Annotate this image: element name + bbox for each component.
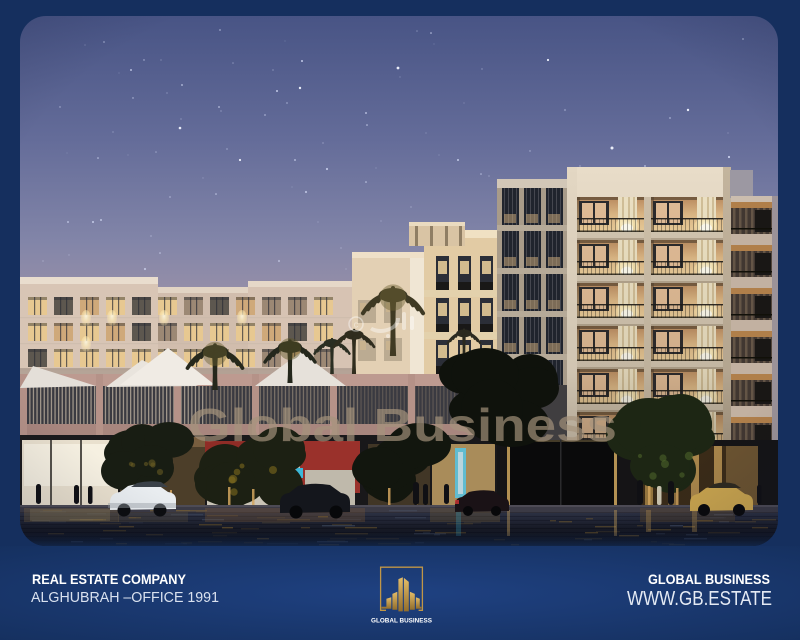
svg-text:WWW.GB.ESTATE: WWW.GB.ESTATE xyxy=(627,588,772,610)
svg-text:GLOBAL BUSINESS: GLOBAL BUSINESS xyxy=(648,572,770,587)
svg-text:ALGHUBRAH –OFFICE 1991: ALGHUBRAH –OFFICE 1991 xyxy=(31,590,219,606)
svg-text:REAL ESTATE COMPANY: REAL ESTATE COMPANY xyxy=(32,572,186,587)
svg-text:GLOBAL BUSINESS: GLOBAL BUSINESS xyxy=(371,617,433,624)
